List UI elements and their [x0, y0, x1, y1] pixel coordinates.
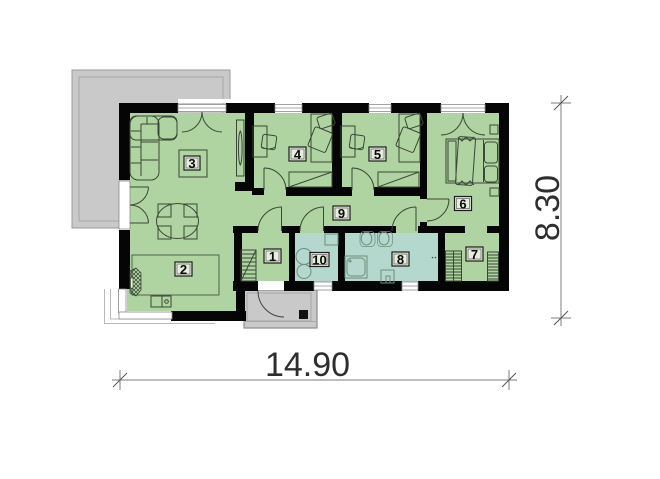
- svg-text:8.30: 8.30: [529, 175, 567, 241]
- svg-text:4: 4: [294, 147, 302, 162]
- svg-text:1: 1: [269, 249, 276, 264]
- svg-text:5: 5: [374, 147, 381, 162]
- svg-text:6: 6: [459, 196, 466, 211]
- svg-text:9: 9: [338, 206, 345, 221]
- svg-text:3: 3: [188, 156, 195, 171]
- svg-text:7: 7: [471, 247, 478, 262]
- svg-text:2: 2: [180, 262, 187, 277]
- svg-text:10: 10: [312, 252, 326, 267]
- svg-text:8: 8: [397, 252, 404, 267]
- svg-text:14.90: 14.90: [265, 346, 350, 384]
